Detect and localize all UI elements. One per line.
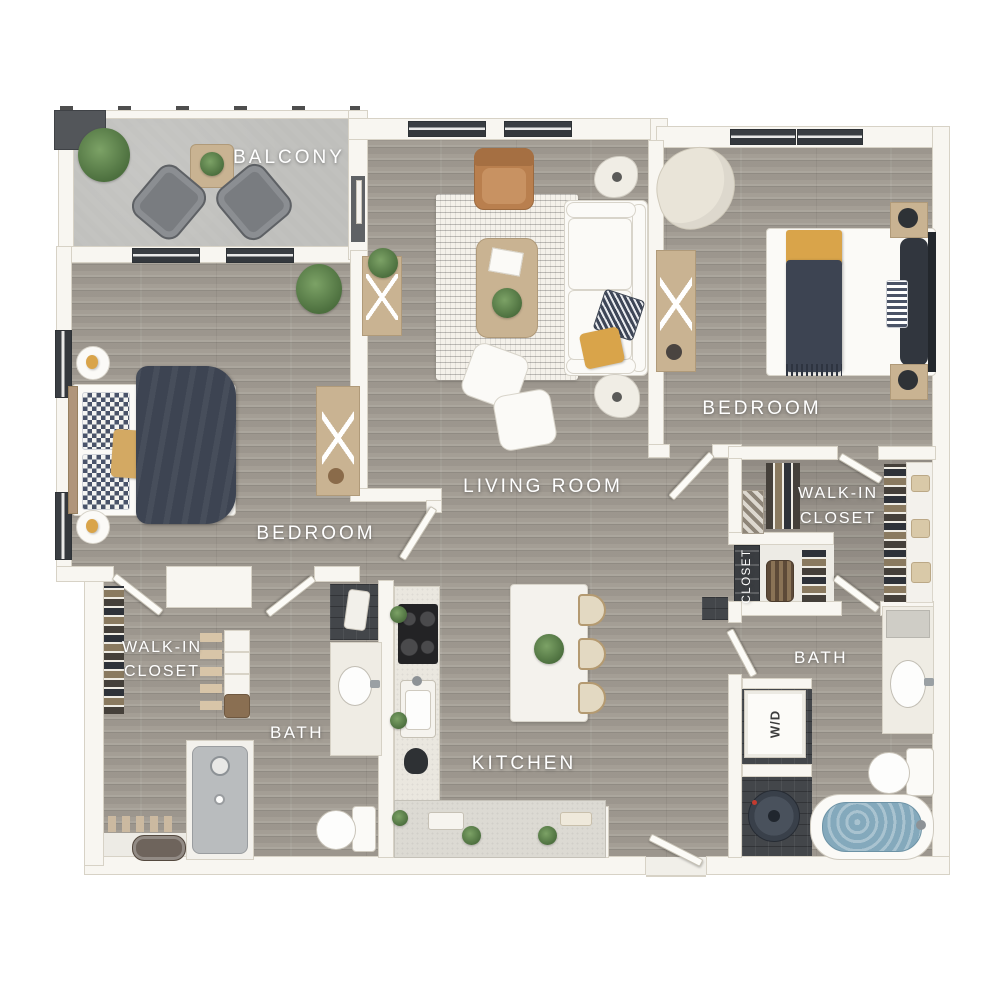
floor-lamp-bulb: [612, 172, 622, 182]
plant: [390, 712, 407, 729]
desk-x-legs: [322, 408, 354, 468]
bottom-exterior-wall: [706, 856, 950, 875]
bed-throw: [786, 230, 842, 264]
bedroom-right-label: BEDROOM: [702, 398, 821, 420]
plant: [200, 152, 224, 176]
sink-basin: [405, 690, 431, 730]
closet-top-wall: [728, 446, 838, 460]
plant: [392, 810, 408, 826]
closet-left-wall: [728, 458, 742, 538]
kitchen-counter-lower: [394, 800, 606, 858]
hall-bath-divider: [728, 674, 742, 858]
faucet: [370, 680, 380, 688]
shower-drain: [214, 794, 225, 805]
hanging-clothes: [802, 548, 826, 602]
toilet-bowl: [316, 810, 356, 850]
window: [408, 121, 486, 137]
armchair-back: [474, 148, 534, 166]
armchair-seat: [482, 168, 526, 204]
basket: [224, 694, 250, 718]
sofa-cushion: [568, 218, 632, 290]
closet-top-wall: [878, 446, 936, 460]
nightstand-decor: [898, 208, 918, 228]
plant: [462, 826, 481, 845]
walk-in-closet-left-label-line2: CLOSET: [124, 663, 200, 681]
window: [132, 248, 200, 263]
interior-wall: [56, 566, 114, 582]
left-lower-exterior-wall: [84, 566, 104, 866]
shoe-shelf: [200, 632, 222, 710]
bed-duvet: [136, 366, 236, 524]
bed-blanket: [786, 260, 842, 372]
hanging-clothes: [766, 463, 800, 529]
bathtub-water: [822, 802, 922, 852]
desk-bowl: [328, 468, 344, 484]
window: [730, 129, 796, 145]
balcony-label: BALCONY: [233, 147, 345, 169]
sofa-back: [632, 204, 646, 372]
faucet: [412, 676, 422, 686]
window: [226, 248, 294, 263]
blanket-fringe: [786, 364, 842, 376]
toilet-bowl: [868, 752, 910, 794]
hall-niche: [702, 597, 728, 620]
hall-bath-divider: [728, 601, 742, 623]
hanging-clothes: [884, 464, 906, 602]
lamp: [86, 355, 98, 369]
sink: [890, 660, 926, 708]
laundry-divider-wall: [742, 764, 812, 777]
closet-label: CLOSET: [741, 548, 753, 603]
interior-wall: [166, 566, 252, 608]
window: [504, 121, 572, 137]
living-room-label: LIVING ROOM: [463, 476, 623, 498]
pillow: [886, 280, 908, 328]
plant: [538, 826, 557, 845]
vanity-tray: [886, 610, 930, 638]
kitchen-label: KITCHEN: [472, 753, 576, 775]
washer-dryer-label: W/D: [768, 710, 783, 738]
interior-wall: [648, 444, 670, 458]
storage-box: [911, 562, 931, 583]
sink: [338, 666, 372, 706]
interior-wall: [314, 566, 360, 582]
shoe-row: [108, 816, 178, 832]
laundry-top-wall: [742, 678, 812, 689]
headboard: [928, 232, 936, 372]
tub-faucet: [916, 820, 926, 830]
toilet-tank: [906, 748, 934, 796]
bath-left-label: BATH: [270, 723, 324, 743]
window: [797, 129, 863, 145]
lamp: [86, 519, 98, 533]
exterior-background: [28, 582, 86, 882]
bath-right-label: BATH: [794, 648, 848, 668]
plant: [78, 128, 130, 182]
walk-in-closet-right-label-line1: WALK-IN: [798, 485, 878, 503]
balcony-sliding-door: [356, 180, 362, 224]
dresser: [742, 490, 764, 534]
headboard: [68, 386, 78, 514]
walk-in-closet-right-label-line2: CLOSET: [800, 510, 876, 528]
walk-in-closet-left-label-line1: WALK-IN: [122, 639, 202, 657]
shower-head: [210, 756, 230, 776]
small-appliance: [428, 812, 464, 830]
desk-x-legs: [660, 272, 692, 336]
console-x-legs: [366, 274, 398, 320]
heater-indicator: [752, 800, 757, 805]
plant: [296, 264, 342, 314]
storage-box: [911, 519, 930, 538]
plant: [390, 606, 407, 623]
storage-box: [911, 475, 930, 492]
pouf: [492, 387, 559, 452]
duffel-bag: [132, 835, 186, 861]
balcony-bedroom-wall: [58, 246, 366, 263]
floor-lamp-bulb: [612, 392, 622, 402]
floor-plan: LIVING ROOM BEDROOM BEDROOM WALK-IN CLOS…: [0, 0, 1000, 1000]
closet-bench: [766, 560, 794, 602]
desk-lamp: [666, 344, 682, 360]
plant: [368, 248, 398, 278]
coffee-maker: [404, 748, 428, 774]
sofa-arm: [566, 202, 636, 218]
plant: [492, 288, 522, 318]
bedroom-left-label: BEDROOM: [256, 523, 375, 545]
cutting-board: [560, 812, 592, 826]
plant: [534, 634, 564, 664]
water-heater-cap: [768, 810, 780, 822]
nightstand-decor: [898, 370, 918, 390]
faucet: [924, 678, 934, 686]
